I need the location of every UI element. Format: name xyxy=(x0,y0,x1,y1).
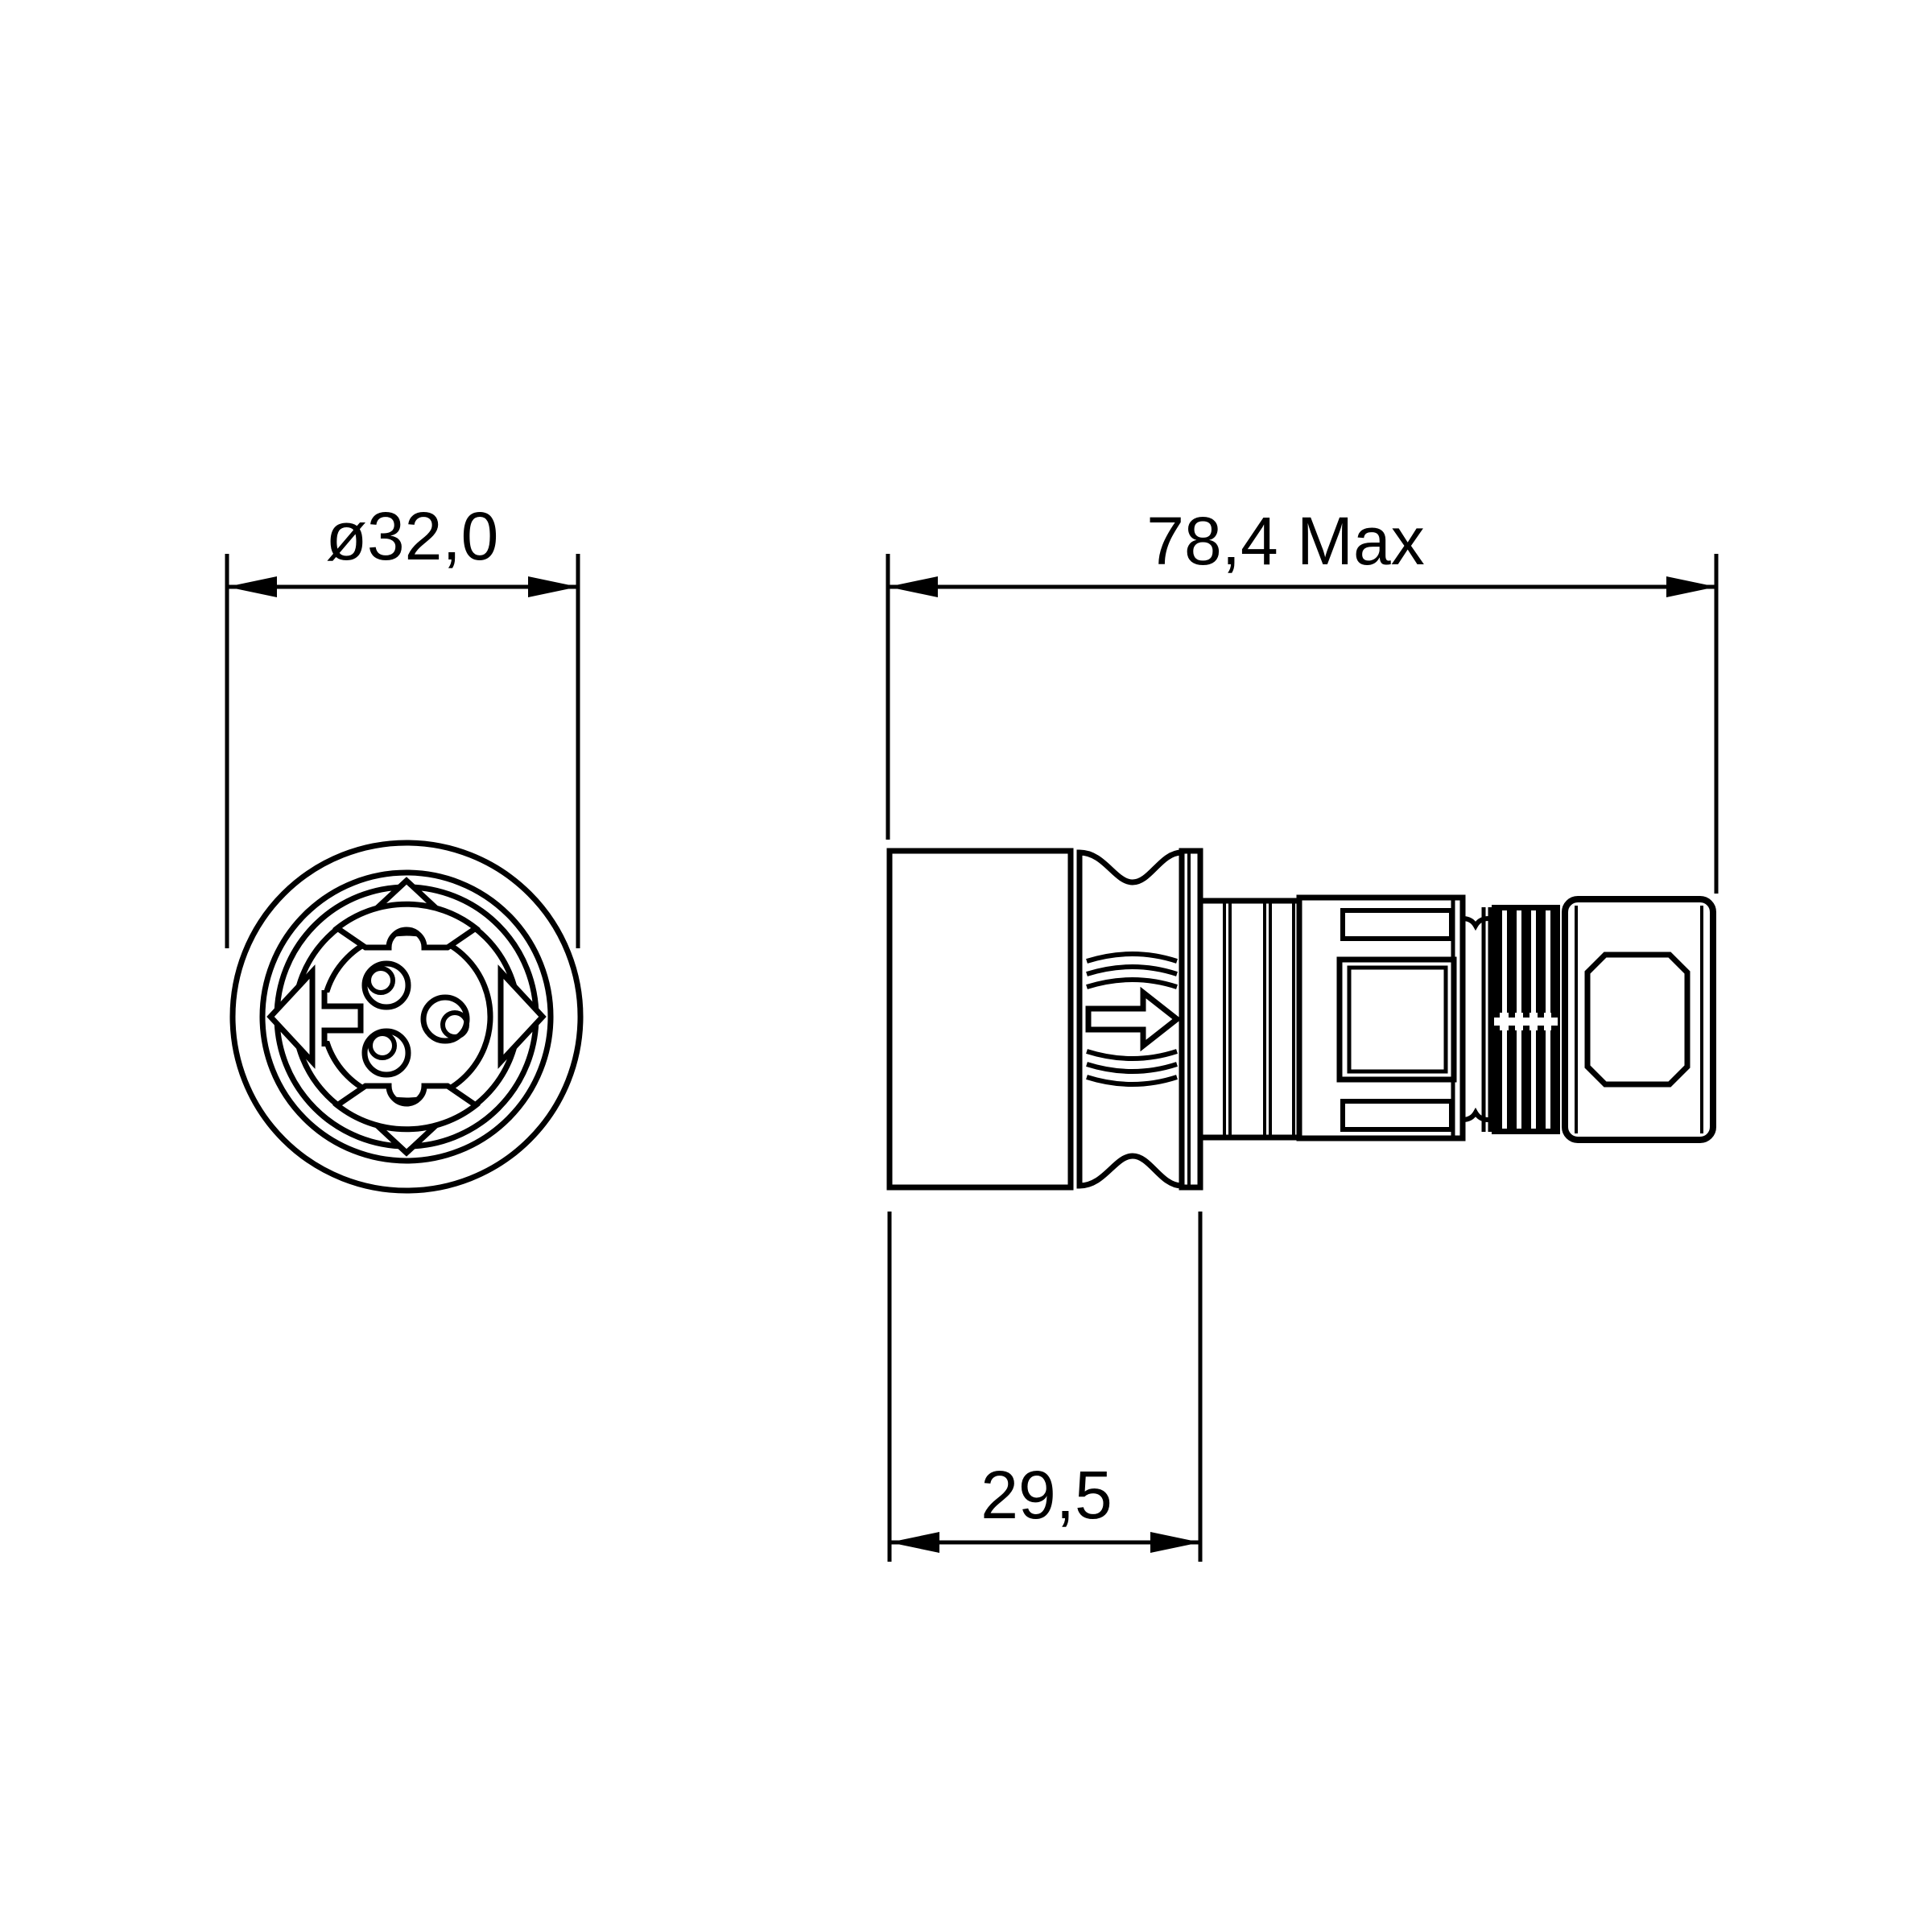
arrowhead-right-icon xyxy=(528,576,578,597)
contact-2 xyxy=(423,997,467,1041)
dimension-label: 78,4 Max xyxy=(1146,503,1425,579)
strain-relief-ribs xyxy=(1492,905,1560,1134)
arrowhead-left-icon xyxy=(890,1532,939,1553)
contact-1 xyxy=(365,964,408,1007)
arrowhead-left-icon xyxy=(227,576,277,597)
dimension-label: ø32,0 xyxy=(326,498,499,574)
rear-shell xyxy=(890,851,1071,1187)
drawing-page: ø32,0 xyxy=(0,0,1932,1932)
front-view: ø32,0 xyxy=(227,498,580,1191)
coupling-barrel xyxy=(1200,901,1299,1137)
alignment-triangle-left xyxy=(270,972,312,1062)
dimension-label: 29,5 xyxy=(980,1457,1113,1533)
alignment-triangle-right xyxy=(501,972,543,1062)
side-view: 78,4 Max xyxy=(888,503,1716,1562)
arrowhead-right-icon xyxy=(1150,1532,1200,1553)
arrowhead-left-icon xyxy=(888,576,938,597)
contact-3 xyxy=(365,1031,408,1075)
technical-drawing-canvas: ø32,0 xyxy=(0,0,1932,1932)
dim-overall-length: 78,4 Max xyxy=(888,503,1716,894)
arrowhead-right-icon xyxy=(1666,576,1716,597)
dim-rear-length: 29,5 xyxy=(890,1212,1200,1562)
